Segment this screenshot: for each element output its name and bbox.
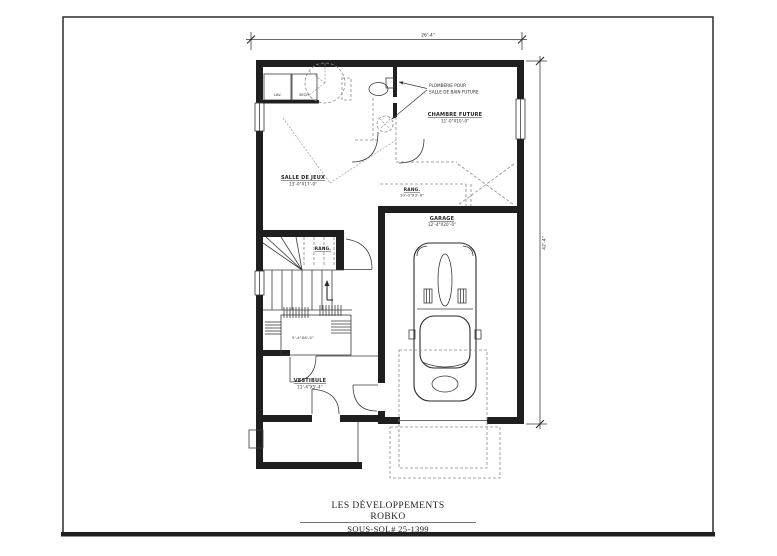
floor-plan-svg: 26'-4" 42'-4" [0, 0, 777, 556]
wall-stair-top [263, 230, 344, 237]
wall-garage-top [378, 206, 524, 213]
room-size-mech: 5'-4"X6'-0" [292, 335, 314, 340]
wall-garage-front-left-jamb [385, 417, 400, 424]
wall-vestibule-front-left [263, 415, 312, 422]
room-label-chambre-future: CHAMBRE FUTURE [428, 112, 483, 118]
company-name-line1: LES DÉVELOPPEMENTS [331, 499, 444, 511]
room-label-rang-stairs: RANG. [315, 246, 332, 252]
wall-top [256, 60, 524, 67]
drawing-sheet: 26'-4" 42'-4" [0, 0, 777, 556]
sheet-name: SOUS-SOL [347, 524, 390, 534]
wall-garage-front-right-jamb [487, 417, 517, 424]
sheet-frame [61, 17, 715, 537]
wall-garage-left-upper [378, 206, 385, 383]
room-label-vestibule: VESTIBULE [294, 378, 327, 384]
wall-vestibule-front-right [340, 415, 378, 422]
appliance-counter [263, 100, 319, 104]
dim-top-label: 26'-4" [421, 33, 435, 39]
room-size-rang-storage: 10'-0"X3'-0" [400, 193, 424, 198]
room-size-garage: 12'-4"X20'-0" [428, 222, 456, 227]
wall-bottom-left [256, 462, 362, 469]
wall-stair-right [336, 237, 344, 270]
wall-garage-left-lower [378, 411, 385, 424]
room-label-salle-de-jeux: SALLE DE JEUX [281, 175, 325, 181]
room-size-vestibule: 11'-4"X5'-4" [297, 385, 322, 390]
room-size-salle-de-jeux: 13'-0"X17'-0" [289, 182, 317, 187]
plumbing-note-line1: PLOMBERIE POUR [429, 83, 466, 88]
company-name-line2: ROBKO [370, 512, 405, 522]
washer-label: LAV. [274, 93, 281, 97]
sheet-border [63, 17, 713, 535]
plumbing-note-line2: SALLE DE BAIN FUTURE [429, 90, 479, 95]
project-number: # 25-1399 [391, 524, 429, 534]
dim-right-label: 42'-4" [542, 236, 548, 250]
room-size-chambre-future: 11'-0"X10'-0" [441, 119, 469, 124]
